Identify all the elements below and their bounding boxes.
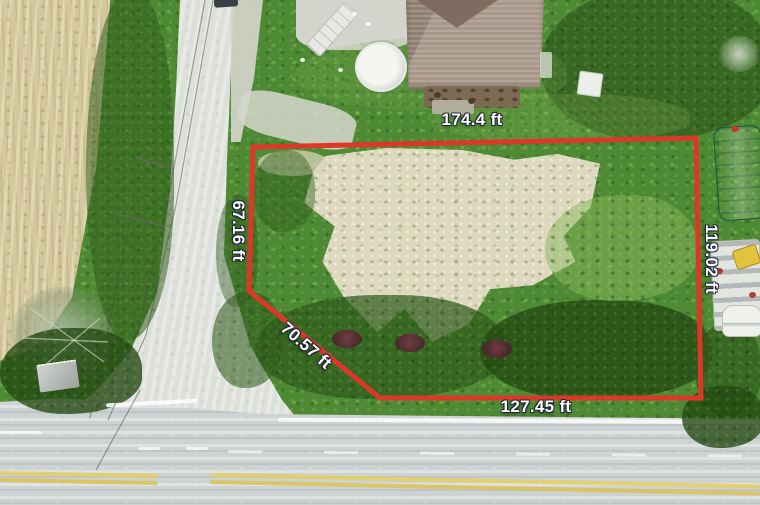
corner-shed xyxy=(36,359,80,392)
above-ground-pool xyxy=(355,42,407,92)
red-object xyxy=(731,126,739,132)
white-vehicle xyxy=(722,305,760,337)
purple-bush xyxy=(482,340,512,358)
tree-cluster xyxy=(480,300,712,400)
overhanging-tree xyxy=(682,386,760,448)
hedge-row xyxy=(86,0,174,340)
small-white-shed xyxy=(576,70,603,97)
measurement-label-left: 67.16 ft xyxy=(228,186,248,276)
utility-boxes xyxy=(540,52,552,78)
purple-bush xyxy=(395,334,425,352)
deck-object xyxy=(468,98,475,104)
purple-bush xyxy=(332,330,362,348)
shrubs xyxy=(253,150,315,232)
deck-object xyxy=(434,92,441,98)
measurement-label-top: 174.4 ft xyxy=(427,110,517,130)
red-equipment xyxy=(749,292,756,298)
white-dashed-line xyxy=(138,447,208,450)
yard-object xyxy=(366,22,371,26)
tree-cluster xyxy=(212,292,282,388)
bare-branches xyxy=(718,36,760,72)
measurement-label-right: 119.02 ft xyxy=(701,214,721,304)
road-edge-line xyxy=(0,431,42,434)
yard-object xyxy=(352,12,357,16)
teal-quonset-shelter xyxy=(713,124,760,221)
light-brush xyxy=(545,195,697,301)
yard-object xyxy=(338,68,343,72)
yard-object xyxy=(300,58,305,62)
aerial-lot-photo: 174.4 ft 67.16 ft 70.57 ft 127.45 ft 119… xyxy=(0,0,760,505)
main-road xyxy=(0,392,760,505)
measurement-label-bottom: 127.45 ft xyxy=(491,397,581,417)
